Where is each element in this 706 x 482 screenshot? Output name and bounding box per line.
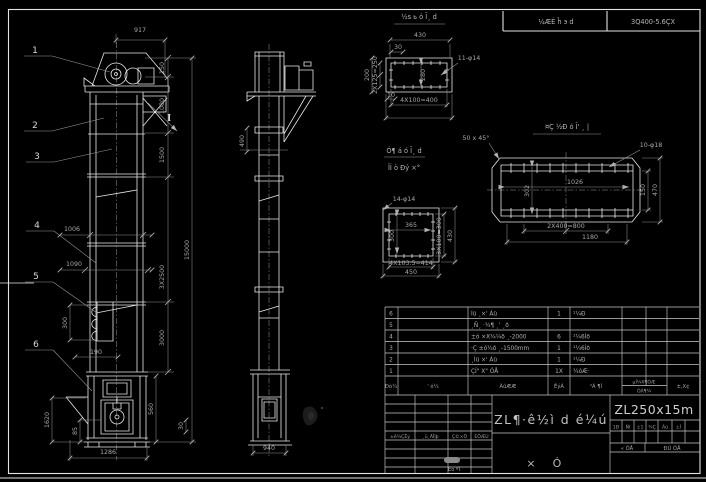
- dim-chain-ticks: [82, 55, 171, 375]
- head-pulley-hub: [111, 69, 121, 79]
- parts-table-header: Ðò¼ ' ó¼ ÃûÆÆ ÊýÁ ²Á ¶Ì µÌ¼X¶ÒÆ ÓÃ¶¼ ±,X…: [385, 379, 690, 395]
- sheet-number-label: ÐÚ ÕÅ: [663, 445, 681, 452]
- attr-cell: ±1: [637, 425, 644, 431]
- dim-430: 430: [414, 32, 426, 39]
- detail-top-flange-linework: [386, 58, 452, 92]
- dim-2x125: 2X125=250: [372, 56, 379, 94]
- callout-6: 6: [33, 340, 39, 350]
- dim-1500: 1500: [159, 147, 166, 163]
- parts-table-grid: [385, 307, 699, 473]
- row-material: ¹¼6Íð: [573, 345, 590, 352]
- boot-takeup-shaft: [115, 415, 119, 419]
- holes-leader: [609, 150, 640, 167]
- dim-300: 300: [389, 230, 396, 242]
- dim-1026: 1026: [567, 179, 583, 186]
- dim-1080: 1080: [159, 98, 166, 114]
- row-no: 2: [389, 358, 393, 364]
- attr-cells-row: 1Ð Ñl ±1 ¾Ç Ãü ±Ì: [613, 424, 681, 431]
- row-qty: 1: [557, 346, 561, 352]
- row-name: ±ó ×X¾¼ð ¸-2000: [471, 334, 527, 341]
- detail-square-flange: Ó¶ á ó Ĩ¸ d ÎÍ ò Ðý ×° 14-φ14 365 300 3X…: [383, 146, 457, 278]
- detail-square-flange-title1: Ó¶ á ó Ĩ¸ d: [386, 146, 421, 155]
- dim-10: 10: [387, 92, 395, 99]
- revision-header-row: ±ê¼ÇÊý ¸ü¸ÄÎļþ Ç©×Ö ÈÕÆÚ: [390, 432, 489, 440]
- rev-header-sign: Ç©×Ö: [452, 433, 468, 440]
- row-no: 5: [389, 323, 393, 329]
- sheets-total-label: « ÕÅ: [621, 445, 634, 452]
- header-weight-top: µÌ¼X¶ÒÆ: [633, 379, 656, 386]
- detail-top-flange: ½s ь ó Ĩ¸ d 430 30 11-φ14 200 2X125=250 …: [364, 12, 480, 118]
- row-name: ¸Ñ¸ ·¾¶ ¸' ¸ð: [471, 322, 509, 329]
- row-qty: 6: [557, 335, 561, 341]
- detail-long-flange: ¤Ç ½Ð ó Ĩ' ¸ | 1026 302 150 470 2X400=80…: [463, 122, 663, 245]
- dim-3x100: 3X100=300: [436, 217, 443, 255]
- table-row: 4 ±ó ×X¾¼ð ¸-2000 6 ¹¼6Íð: [389, 334, 590, 341]
- dim-490: 490: [239, 135, 246, 147]
- chamfer-note: 50 x 45°: [463, 134, 490, 142]
- section-mark-label: I: [167, 114, 171, 124]
- front-view-linework: [66, 53, 169, 447]
- header-note: ±,X¢: [677, 384, 690, 390]
- dim-150: 150: [159, 62, 166, 74]
- ink-smudge-core: [308, 412, 314, 420]
- dim-280: 280: [420, 69, 427, 81]
- callout-1: 1: [32, 46, 38, 56]
- row-no: 1: [389, 369, 393, 375]
- holes-leader: [383, 203, 392, 210]
- side-view: 490 940: [239, 44, 323, 458]
- dim-917: 917: [134, 27, 146, 34]
- header-no: Ðò¼: [385, 383, 397, 390]
- detail-top-flange-title: ½s ь ó Ĩ¸ d: [401, 12, 437, 21]
- row-material: ¹¼6Íð: [573, 334, 590, 341]
- callout-5: 5: [33, 272, 39, 282]
- rev-header-date: ÈÕÆÚ: [474, 432, 488, 440]
- border-rect: [9, 10, 701, 474]
- dim-3000: 3000: [159, 330, 166, 346]
- table-row: 1 ÇÍ" X" ÓÅ 1X ¼óÆ·: [389, 368, 590, 375]
- detail-top-flange-dims: 430 30 11-φ14 200 2X125=250 280 10 4X100…: [364, 32, 480, 118]
- dim-365: 365: [405, 222, 417, 229]
- dim-940: 940: [263, 445, 275, 452]
- header-qty: ÊýÁ: [554, 382, 564, 390]
- rev-header-file: ¸ü¸ÄÎļþ: [422, 433, 438, 440]
- header-strip-right-label: 3Q400-5.6ÇX: [631, 18, 675, 26]
- header-strip-left-label: ¼ÆÈ ĥ э d: [538, 17, 573, 26]
- attr-cell: ±Ì: [676, 424, 681, 431]
- holes-note: 14-φ14: [393, 196, 415, 203]
- detail-long-flange-title: ¤Ç ½Ð ó Ĩ' ¸ |: [545, 122, 589, 131]
- dim-4x100: 4X100=400: [400, 97, 438, 104]
- dim-200: 200: [364, 69, 371, 81]
- side-view-linework: [247, 52, 316, 445]
- cad-drawing-canvas: ¼ÆÈ ĥ э d 3Q400-5.6ÇX I: [0, 0, 706, 482]
- holes-note: 11-φ14: [458, 55, 480, 62]
- dim-30: 30: [394, 44, 402, 51]
- attr-cell: 1Ð: [613, 425, 620, 431]
- title-sub-char-left: ×: [526, 457, 535, 470]
- dim-302: 302: [524, 185, 531, 197]
- row-name: ÇÍ" X" ÓÅ: [471, 368, 498, 375]
- attr-cell: Ãü: [662, 424, 668, 431]
- dim-1006: 1006: [64, 226, 80, 233]
- dim-15000: 15000: [184, 240, 191, 260]
- dim-30: 30: [178, 422, 185, 430]
- callout-2: 2: [32, 121, 38, 131]
- dim-470: 470: [652, 184, 659, 196]
- approve-label: Éó ºÌ: [448, 465, 461, 473]
- dim-560: 560: [148, 403, 155, 415]
- holes-note: 10-φ18: [640, 142, 662, 149]
- row-qty: 1: [557, 312, 561, 318]
- title-sub-char-right: Ó: [553, 457, 562, 470]
- head-pulley-outer: [105, 63, 127, 85]
- callouts: 1 2 3 4 5 6: [24, 46, 112, 391]
- dim-1090: 1090: [66, 261, 82, 268]
- row-material: ¹¼Ð: [573, 311, 586, 318]
- title-block: ±ê¼ÇÊý ¸ü¸ÄÎļþ Ç©×Ö ÈÕÆÚ Éó ºÌ ZL¶·ê½ì d…: [385, 395, 700, 473]
- boot-takeup-circle: [110, 410, 124, 424]
- callout-underlines: [24, 56, 54, 350]
- row-name: ·Ç ±ó¼ð ¸-1500mm: [471, 345, 530, 352]
- dim-3x2500: 3X2500: [159, 265, 166, 289]
- row-material: ¼óÆ·: [573, 368, 590, 375]
- ink-dot: [321, 407, 323, 409]
- callout-4: 4: [34, 221, 40, 231]
- table-row: 5 ¸Ñ¸ ·¾¶ ¸' ¸ð: [389, 322, 509, 329]
- dim-2x400: 2X400=800: [547, 223, 585, 230]
- row-no: 6: [389, 312, 393, 318]
- row-name: Íü ¸×' Áü: [471, 311, 497, 318]
- dim-190: 190: [90, 349, 102, 356]
- dim-430: 430: [447, 230, 454, 242]
- rev-header-mark: ±ê¼ÇÊý: [390, 432, 410, 440]
- dim-1180: 1180: [582, 234, 598, 241]
- row-material: ¹¼Ð: [573, 357, 586, 364]
- row-qty: 1: [557, 358, 561, 364]
- dim-85: 85: [72, 427, 79, 435]
- holes-leader: [441, 63, 458, 75]
- detail-square-flange-title2: ÎÍ ò Ðý ×°: [388, 163, 420, 172]
- header-weight-bottom: ÓÃ¶¼: [637, 388, 652, 395]
- chamfer-leader: [489, 143, 499, 159]
- row-no: 4: [389, 335, 393, 341]
- dim-1286: 1286: [100, 449, 116, 456]
- sheet-frame: [0, 10, 706, 479]
- drawing-title: ZL¶·ê½ì d é¼ú: [494, 412, 608, 427]
- cad-sheet: ¼ÆÈ ĥ э d 3Q400-5.6ÇX I: [0, 0, 706, 482]
- header-material: ²Á ¶Ì: [590, 383, 603, 390]
- row-qty: 1X: [555, 369, 563, 375]
- attr-cell: ¾Ç: [648, 425, 656, 431]
- header-strip: ¼ÆÈ ĥ э d 3Q400-5.6ÇX: [503, 11, 700, 31]
- table-row: 6 Íü ¸×' Áü 1 ¹¼Ð: [389, 311, 586, 318]
- dim-1620: 1620: [44, 412, 51, 428]
- attr-cell: Ñl: [626, 424, 631, 431]
- dim-4x103: 4X103.5=414: [389, 260, 433, 267]
- head-pulley-shaft: [115, 73, 118, 76]
- table-row: 3 ·Ç ±ó¼ð ¸-1500mm 1 ¹¼6Íð: [389, 345, 590, 352]
- model-number: ZL250x15m: [614, 402, 693, 417]
- parts-table: 6 Íü ¸×' Áü 1 ¹¼Ð 5 ¸Ñ¸ ·¾¶ ¸' ¸ð 4 ±ó ×…: [385, 307, 699, 473]
- row-name: ¸Íü ×' Áü: [471, 357, 497, 364]
- dim-450: 450: [405, 269, 417, 276]
- callout-3: 3: [34, 152, 40, 162]
- drive-pulley: [125, 68, 141, 84]
- signature-mark: [444, 457, 460, 463]
- dim-150: 150: [640, 184, 647, 196]
- table-row: 2 ¸Íü ×' Áü 1 ¹¼Ð: [389, 357, 586, 364]
- row-no: 3: [389, 346, 393, 352]
- dim-300: 300: [62, 317, 69, 329]
- header-name: ÃûÆÆ: [500, 383, 517, 390]
- header-code: ' ó¼: [427, 383, 438, 390]
